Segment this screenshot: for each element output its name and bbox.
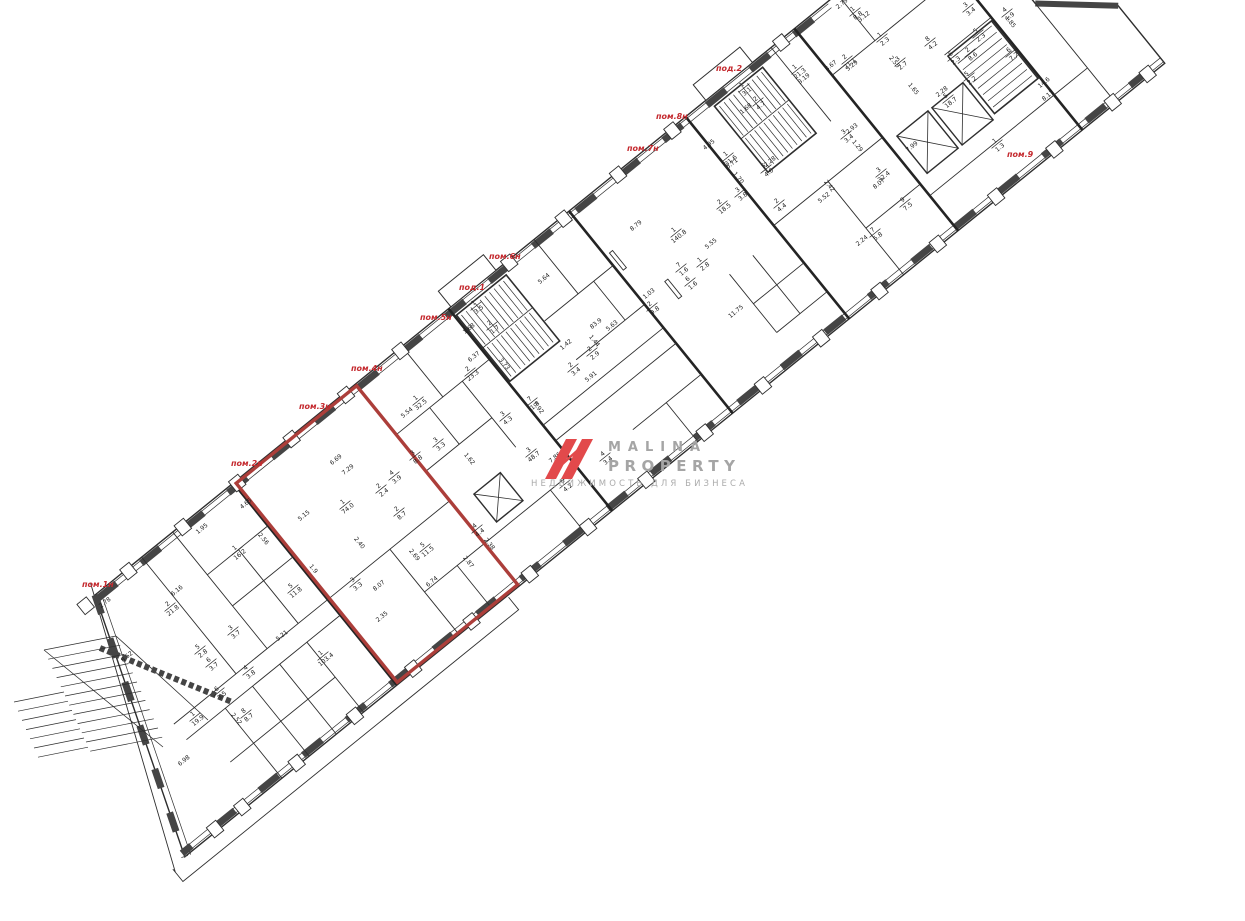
facade-pilasters <box>46 0 1157 838</box>
dimension-label: 1.65 <box>906 82 920 97</box>
room-label: 33.7 <box>223 621 244 642</box>
stair-step <box>22 710 72 720</box>
room-label: 23.4 <box>563 358 584 379</box>
dimension-label: 6.16 <box>170 584 185 598</box>
room-label: 84.2 <box>920 32 941 53</box>
room-label: 511.8 <box>283 579 304 600</box>
dimension-label: 2.35 <box>375 610 390 624</box>
dimension-label: 2.93 <box>845 122 860 136</box>
room-label: 12.3 <box>872 28 893 49</box>
room-label: 33.3 <box>345 573 366 594</box>
stair-step <box>26 720 76 730</box>
room-label: 1140.8 <box>665 222 689 245</box>
stair-step <box>38 747 88 757</box>
dimension-label: 7.29 <box>341 463 356 477</box>
elevator-shaft <box>474 473 523 522</box>
room-label: 71.6 <box>671 258 692 279</box>
unit-label: пом.7н <box>627 144 659 153</box>
room-label: 221.8 <box>160 597 181 618</box>
pilaster <box>77 597 95 615</box>
dimension-label: 2.42 <box>822 179 836 194</box>
room-label: 218.5 <box>712 195 733 216</box>
partition-walls <box>79 0 1115 810</box>
room-label: 22.4 <box>371 479 392 500</box>
dimension-label: 6.74 <box>425 575 440 589</box>
pilaster <box>772 34 790 52</box>
dimension-label: 2.24 <box>855 234 870 248</box>
pilaster <box>288 754 306 772</box>
room-labels-layer: 116.2221.833.752.863.743.863.5119.988.75… <box>160 0 1022 728</box>
stair-step <box>494 289 518 319</box>
stair-step <box>755 130 779 160</box>
dimension-label: 1.29 <box>850 139 864 154</box>
unit-label: пом.3н <box>299 402 331 411</box>
pilaster <box>120 562 138 580</box>
pier <box>609 251 626 271</box>
pier <box>665 279 682 299</box>
room-label: 52.2 <box>959 67 980 88</box>
dimension-label: 83.9 <box>589 317 604 331</box>
dimension-label: 5.55 <box>704 237 719 251</box>
stair-step <box>973 51 1012 82</box>
watermark: MALINA PROPERTY НЕДВИЖИМОСТЬ ДЛЯ БИЗНЕСА <box>531 439 748 489</box>
stair-step <box>764 123 788 153</box>
unit-label: под.2 <box>716 64 743 73</box>
dimension-label: 6.37 <box>467 350 482 364</box>
building-outline <box>21 0 1165 857</box>
unit-label: пом.1н <box>82 580 114 589</box>
dimension-label: 6.98 <box>177 754 192 768</box>
unit-label: под.1 <box>459 283 485 292</box>
stair-step <box>30 729 80 739</box>
dimension-label: 1.95 <box>195 522 210 536</box>
dimension-label: 8.17 <box>1041 89 1056 103</box>
room-label: 28.7 <box>389 502 410 523</box>
stair-step <box>983 63 1022 94</box>
elevator-shaft <box>897 111 958 173</box>
dimension-label: 1.03 <box>642 287 657 301</box>
stair-step <box>773 115 797 145</box>
watermark-title-line1: MALINA <box>608 440 707 455</box>
stair-step <box>759 127 783 157</box>
dimension-label: 4.65 <box>239 497 254 511</box>
facade-wall-top <box>98 6 830 599</box>
room-label: 33.4 <box>958 0 979 19</box>
dimension-label: 5.15 <box>297 509 312 523</box>
room-label: 174.0 <box>335 495 356 516</box>
dimension-label: 1.62 <box>462 452 476 467</box>
room-label: 12.8 <box>692 253 713 274</box>
room-label: 11.3 <box>987 134 1008 155</box>
stair-step <box>520 320 544 350</box>
stair-step <box>993 76 1032 107</box>
dimension-label: 8.67 <box>824 59 839 73</box>
stair-step <box>778 111 802 141</box>
dimension-label: 8.79 <box>629 219 644 233</box>
unit-label: пом.2н <box>231 459 263 468</box>
dimension-label: 2.40 <box>352 536 366 551</box>
floor-plan-canvas: пом.1нпом.2нпом.3нпом.4нпом.5нпод.1пом.6… <box>0 0 1245 921</box>
dimension-label: 2.52 <box>229 712 243 727</box>
stair-step <box>769 119 793 149</box>
room-label: 62.3 <box>943 47 964 68</box>
room-label: 44.4 <box>467 519 488 540</box>
dimension-label: 5.52 <box>817 191 832 205</box>
dimension-label: 7.99 <box>905 140 920 154</box>
watermark-subtitle: НЕДВИЖИМОСТЬ ДЛЯ БИЗНЕСА <box>531 479 748 489</box>
dimension-label: 11.75 <box>727 304 745 320</box>
watermark-title-line2: PROPERTY <box>608 457 741 475</box>
dimension-label: 2.87 <box>461 555 475 570</box>
stair-step <box>511 328 535 358</box>
stair-step <box>499 285 523 315</box>
stair-step <box>761 72 785 102</box>
right-end-wall <box>1035 0 1118 45</box>
unit-label: пом.9 <box>1007 150 1034 159</box>
dimension-label: 8.07 <box>372 579 387 593</box>
stair-step <box>18 701 68 711</box>
unit-label: пом.4н <box>351 364 383 373</box>
room-label: 28.6 <box>960 43 981 64</box>
room-label: 1103.4 <box>312 645 336 668</box>
dimension-label: 6.69 <box>329 453 344 467</box>
dimension-label: 1.70 <box>731 171 745 186</box>
stair-step <box>988 69 1027 100</box>
unit-label: пом.6н <box>489 252 521 261</box>
room-label: 24.4 <box>769 194 790 215</box>
room-label: 33.3 <box>428 433 449 454</box>
stair-step <box>783 108 807 138</box>
room-label: 119.9 <box>185 707 206 728</box>
unit-label: пом.5н <box>420 313 452 322</box>
dimension-label: 5.64 <box>537 272 552 286</box>
stair-step <box>787 104 811 134</box>
dimension-label: 2.56 <box>256 532 270 547</box>
dim-labels-layer: 2.786.161.952.564.658.526.982.525.216.69… <box>98 0 1056 768</box>
stair-step <box>489 292 513 322</box>
room-label: 24.7 <box>748 92 769 113</box>
unit-labels-layer: пом.1нпом.2нпом.3нпом.4нпом.5нпод.1пом.6… <box>82 64 1034 589</box>
dimension-label: 5.54 <box>400 406 415 420</box>
dimension-label: 5.21 <box>275 629 290 643</box>
stair-step <box>506 332 530 362</box>
dimension-label: 2.69 <box>407 548 421 563</box>
unit-label: пом.8н <box>656 112 688 121</box>
room-label: 348.7 <box>521 443 542 464</box>
stair-step <box>34 738 84 748</box>
room-label: 43.9 <box>384 466 405 487</box>
stair-step <box>14 692 64 702</box>
dimension-label: 2.79 <box>835 0 850 11</box>
dimension-label: 1.42 <box>559 338 574 352</box>
stair-step <box>515 324 539 354</box>
